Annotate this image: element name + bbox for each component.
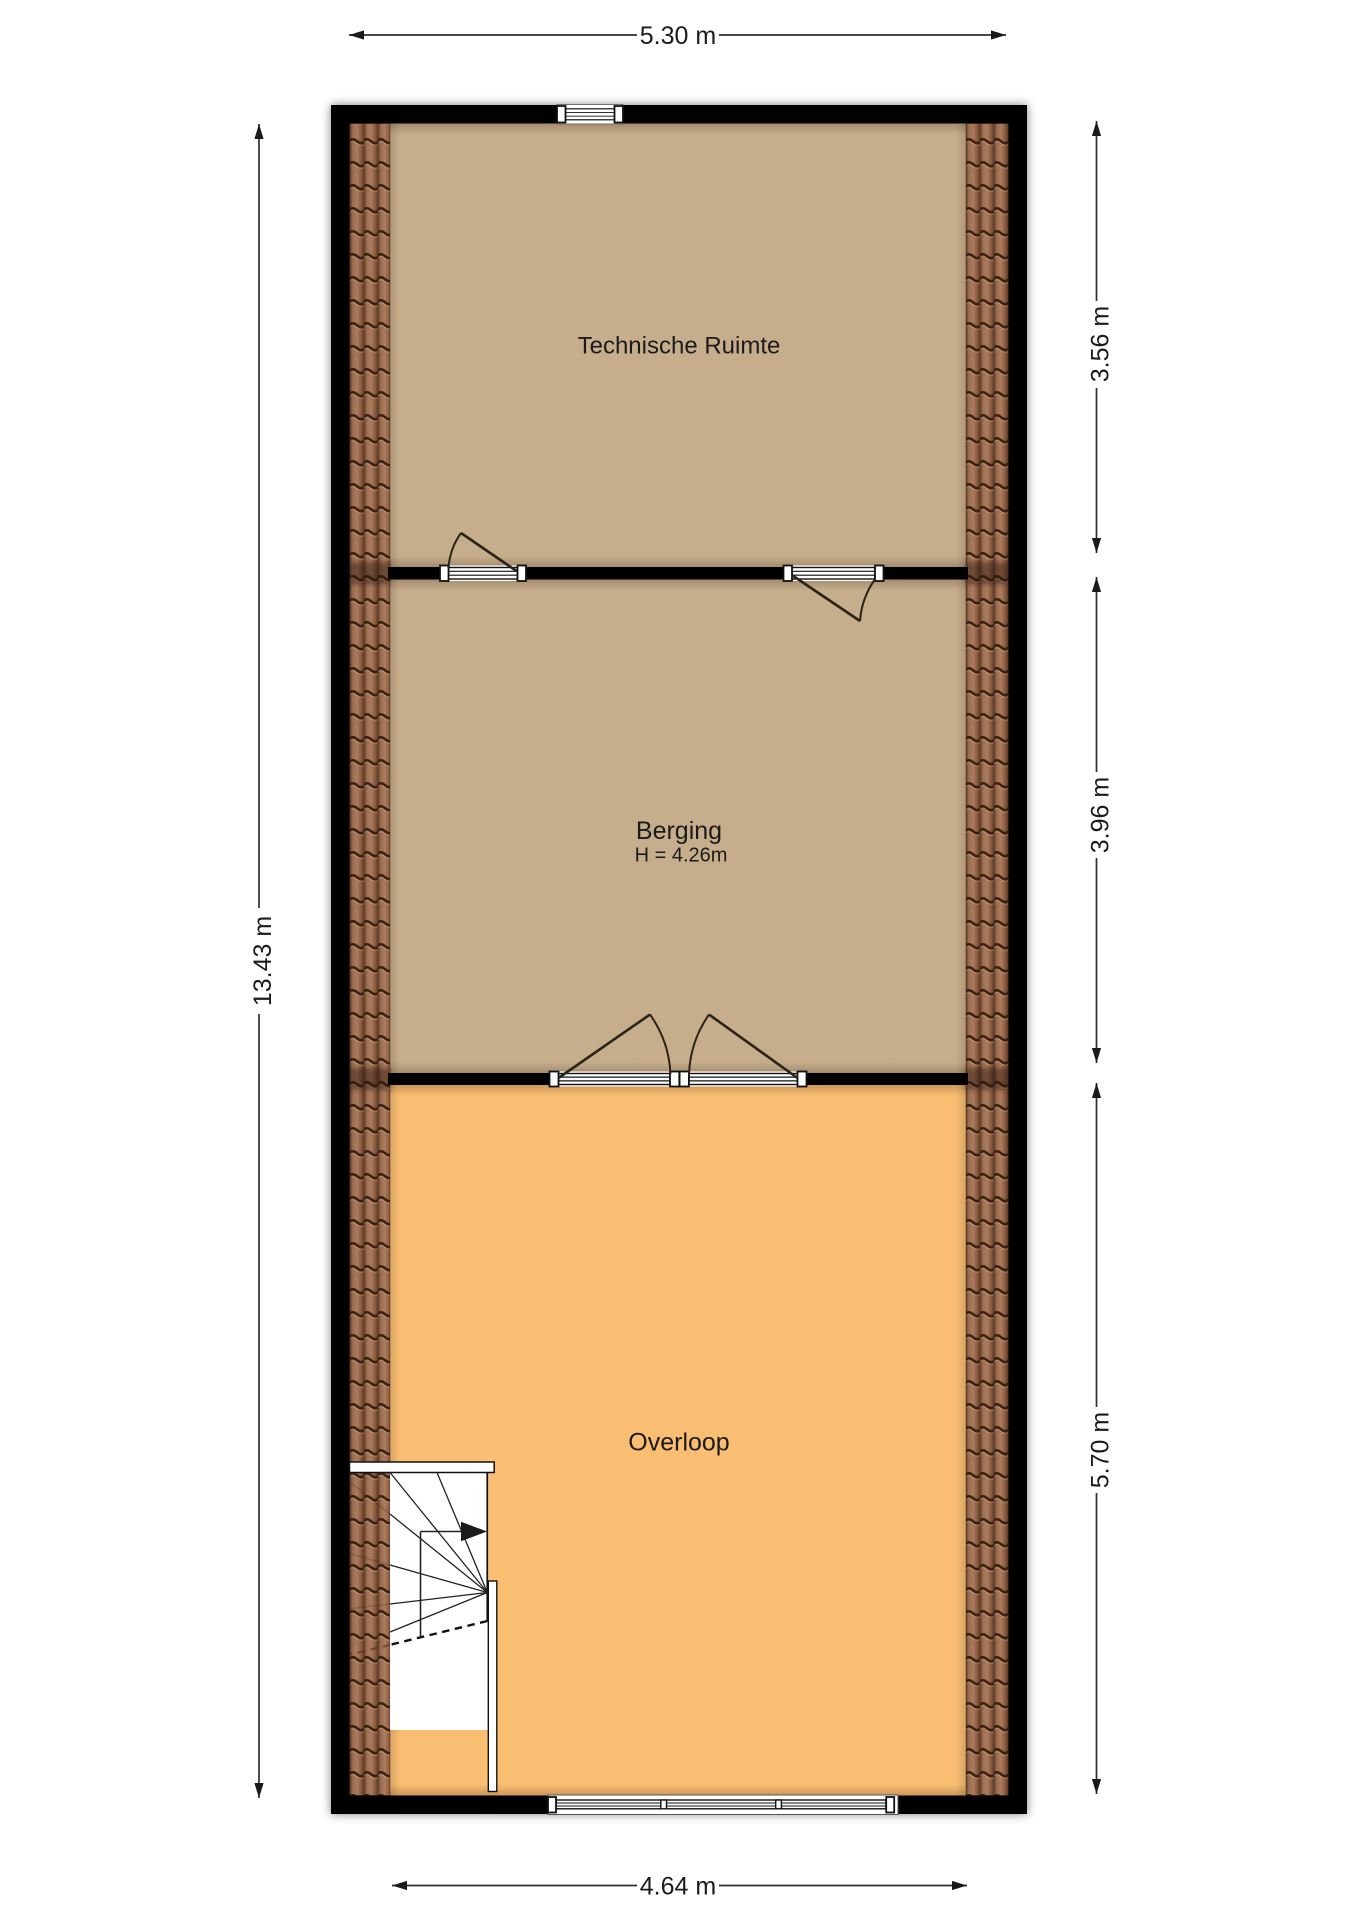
svg-text:Berging: Berging [636, 817, 722, 845]
svg-text:Overloop: Overloop [628, 1429, 729, 1457]
svg-text:H = 4.26m: H = 4.26m [635, 845, 728, 867]
svg-text:5.70 m: 5.70 m [1087, 1412, 1115, 1488]
svg-text:3.96 m: 3.96 m [1087, 777, 1115, 853]
svg-text:3.56 m: 3.56 m [1087, 306, 1115, 382]
svg-text:5.30 m: 5.30 m [640, 22, 716, 50]
svg-text:13.43 m: 13.43 m [249, 916, 277, 1006]
svg-text:4.64 m: 4.64 m [640, 1873, 716, 1901]
svg-text:Technische Ruimte: Technische Ruimte [578, 333, 781, 360]
